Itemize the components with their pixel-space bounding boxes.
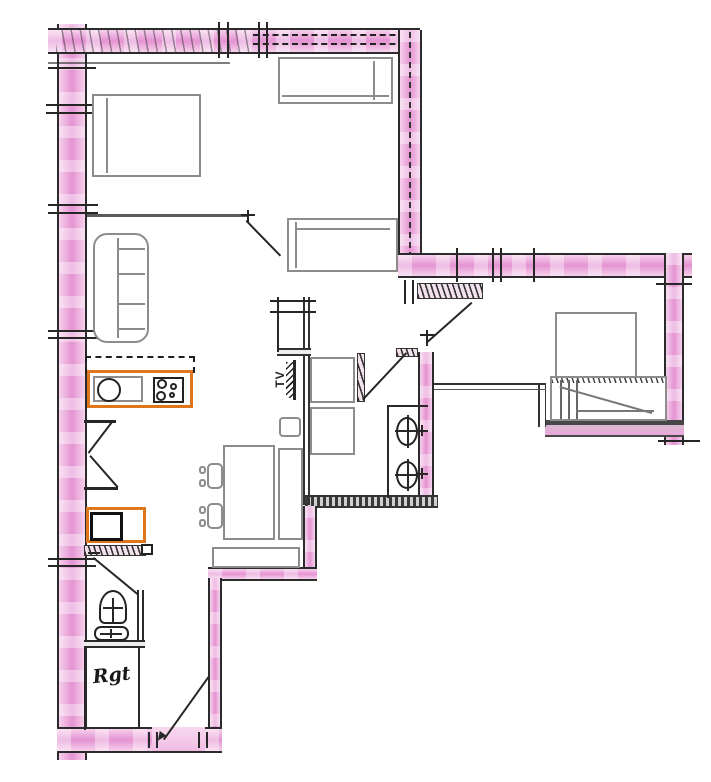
sofa-arm-line-bottom — [117, 328, 145, 330]
wall-upper-right — [398, 30, 422, 272]
three-seat-sofa — [93, 233, 149, 343]
closet-stub-top — [84, 420, 116, 423]
closet-bifold-door-2 — [89, 455, 118, 488]
wall-tick — [412, 280, 414, 304]
toilet — [99, 590, 127, 624]
appliance-square — [90, 512, 123, 541]
wall-tick — [266, 22, 268, 58]
door-swing-bedroom1 — [246, 220, 282, 257]
wall-tick — [258, 22, 260, 58]
wc-frame-box — [141, 544, 153, 555]
wall-top-underline — [48, 62, 230, 64]
door-hinge-tick — [88, 552, 100, 554]
wall-bathroom-bottom — [305, 495, 438, 508]
sink-bowl — [97, 378, 121, 402]
wall-top-dashed-line-1 — [253, 34, 415, 36]
wall-top — [48, 28, 420, 54]
washer-square — [310, 407, 355, 455]
wall-step-horizontal — [428, 383, 546, 390]
hand-basin-line-v — [110, 629, 112, 638]
wall-step-vertical — [538, 385, 546, 427]
storage-left-line — [84, 648, 86, 730]
dining-chair-arm — [199, 479, 206, 487]
wall-tick — [270, 311, 316, 313]
double-bed — [92, 94, 201, 177]
stairs-inner-line — [576, 410, 654, 412]
wall-bottom-left-seg — [57, 727, 152, 753]
floor-plan: TV — [0, 0, 711, 782]
kitchen-unit — [87, 370, 193, 408]
dining-table — [223, 445, 275, 540]
partition-bedroom1 — [87, 214, 247, 218]
hob-burner — [157, 379, 167, 389]
closet-bifold-door-1 — [88, 420, 114, 454]
bench — [212, 547, 300, 568]
wall-rightwing-bottom — [545, 420, 684, 437]
wall-tick — [198, 732, 200, 748]
wall-tick — [48, 558, 96, 560]
dining-chair-seat — [207, 503, 223, 529]
wall-tick — [48, 330, 98, 332]
wall-tick — [656, 283, 692, 285]
wall-corridor-closet — [417, 283, 483, 299]
storage-right-line — [138, 648, 140, 728]
wall-top-dashed-line-2 — [253, 43, 415, 45]
sofa-cushion-line-1 — [117, 273, 145, 275]
sofa-arm-line-top — [117, 248, 145, 250]
tv-label: TV — [273, 359, 289, 399]
tv-wall-mount — [293, 360, 296, 400]
basin — [396, 417, 418, 446]
wall-tick — [500, 248, 502, 282]
wall-dining-bottom — [208, 567, 317, 581]
wall-wc-bottom — [84, 640, 145, 648]
toilet-cross-v — [112, 598, 114, 622]
stairs-step-line — [568, 380, 570, 419]
wall-wc-top — [84, 545, 146, 556]
storage-label: Rgt — [92, 662, 139, 694]
hand-basin — [94, 626, 129, 641]
door-swing-right-room — [427, 302, 472, 343]
closet-stub-bottom — [84, 487, 118, 490]
wall-rightwing-right — [664, 253, 684, 445]
wall-entry-right — [208, 578, 222, 752]
wall-tick — [456, 248, 458, 282]
hob-burner — [170, 383, 177, 390]
dining-chair-arm — [199, 466, 206, 474]
wall-tick — [46, 112, 98, 114]
wall-top-hatch — [56, 30, 251, 52]
wall-tick — [48, 204, 98, 206]
door-hinge-tick — [426, 330, 428, 346]
wall-tick — [148, 732, 150, 748]
wall-tick — [206, 732, 208, 748]
wall-bathroom-left — [303, 297, 310, 505]
wall-tick — [533, 248, 535, 282]
wall-tick — [270, 300, 316, 302]
stool — [279, 417, 301, 437]
basin-faucet-tick — [421, 425, 423, 436]
shower-square — [310, 357, 355, 403]
single-bed-foot-line — [282, 95, 389, 97]
door-swing-bathroom — [362, 352, 407, 400]
sofa-bed — [287, 218, 398, 272]
wall-tick — [48, 565, 96, 567]
basin-faucet-tick — [418, 473, 428, 475]
appliance-box — [86, 507, 146, 543]
wall-left — [57, 24, 87, 760]
shaft-left-line — [277, 297, 279, 352]
wall-tick — [48, 212, 98, 214]
basin-faucet-tick — [421, 468, 423, 479]
sofa-back-line — [117, 238, 119, 338]
basin-cross-h — [395, 430, 419, 432]
hob-burner — [156, 391, 166, 401]
dining-chair-seat — [207, 463, 223, 489]
wall-upper-right-dashdot — [409, 32, 411, 268]
wall-tick — [46, 104, 98, 106]
wall-wc-right — [137, 590, 144, 647]
wall-tick — [404, 280, 406, 304]
sofa-bed-top-line — [295, 228, 390, 230]
stairs-step-line — [576, 380, 578, 419]
basin — [396, 461, 418, 489]
basin-faucet-tick — [418, 430, 428, 432]
wall-tick — [492, 248, 494, 282]
wall-tick — [227, 22, 229, 58]
wall-tick — [218, 22, 220, 58]
double-bed-pillow-line — [106, 98, 108, 173]
wall-tick — [658, 440, 700, 442]
side-counter — [278, 448, 303, 540]
wall-tick — [48, 337, 98, 339]
hob-burner — [169, 392, 175, 398]
stairs-band — [550, 376, 667, 421]
wall-bathroom-inner-stub — [357, 353, 365, 402]
toilet-cross-h — [103, 607, 123, 609]
wall-rightwing-top — [398, 253, 692, 278]
basin-cross-h — [395, 474, 419, 476]
dining-chair-arm — [199, 506, 206, 514]
wall-tick — [48, 67, 96, 69]
wall-bathroom-top-stub — [277, 348, 311, 356]
sofa-cushion-line-2 — [117, 303, 145, 305]
vanity-edge-v — [387, 405, 389, 498]
single-bed-top — [278, 57, 393, 104]
dining-chair-arm — [199, 519, 206, 527]
vanity-edge-h — [387, 405, 428, 407]
